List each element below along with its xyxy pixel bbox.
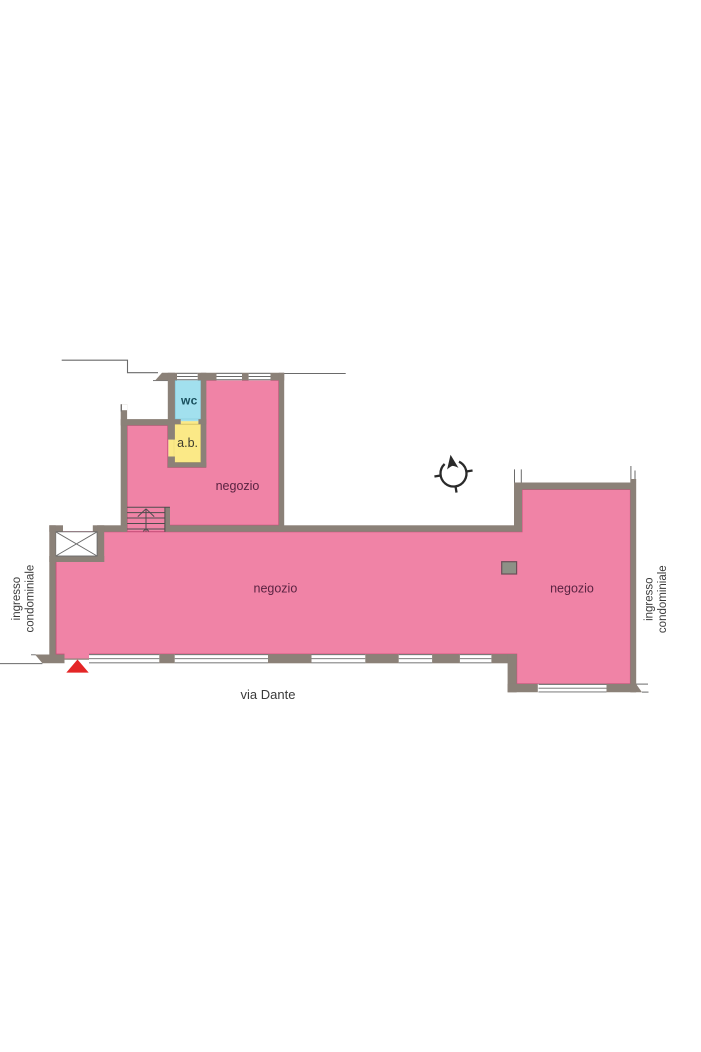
svg-text:negozio: negozio bbox=[216, 479, 260, 493]
svg-text:condominiale: condominiale bbox=[24, 565, 36, 633]
svg-text:via Dante: via Dante bbox=[241, 687, 296, 702]
svg-text:wc: wc bbox=[180, 393, 198, 407]
svg-text:ingresso: ingresso bbox=[643, 577, 655, 620]
svg-text:negozio: negozio bbox=[254, 581, 298, 595]
svg-text:negozio: negozio bbox=[550, 581, 594, 595]
svg-text:ingresso: ingresso bbox=[11, 577, 23, 620]
svg-text:a.b.: a.b. bbox=[177, 436, 198, 450]
svg-text:condominiale: condominiale bbox=[657, 565, 669, 633]
